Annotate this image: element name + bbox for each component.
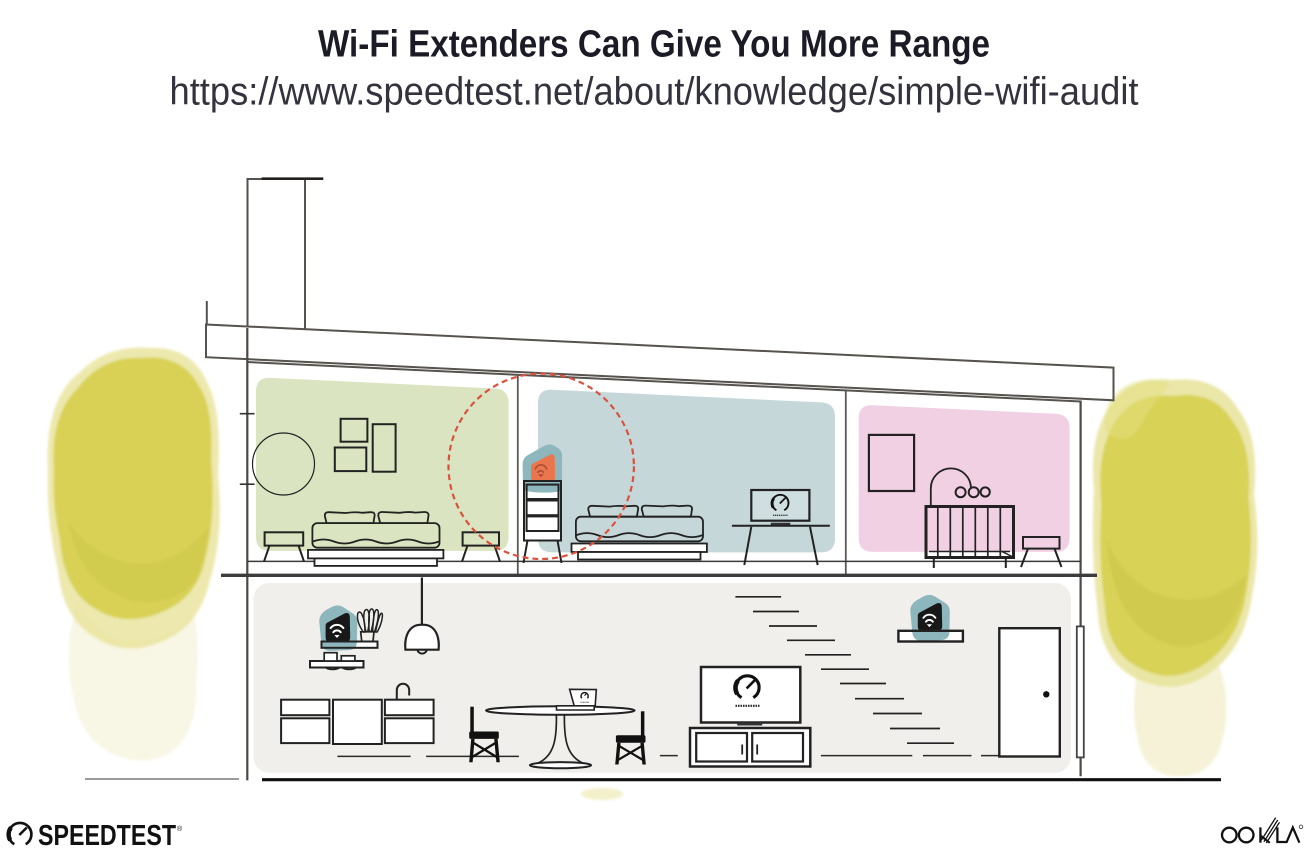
svg-text:SPEEDTEST: SPEEDTEST — [38, 820, 176, 852]
svg-text:®: ® — [177, 825, 183, 833]
svg-text:https://www.speedtest.net/abou: https://www.speedtest.net/about/knowledg… — [170, 71, 1139, 114]
svg-text:Wi-Fi Extenders Can Give You M: Wi-Fi Extenders Can Give You More Range — [318, 24, 990, 66]
